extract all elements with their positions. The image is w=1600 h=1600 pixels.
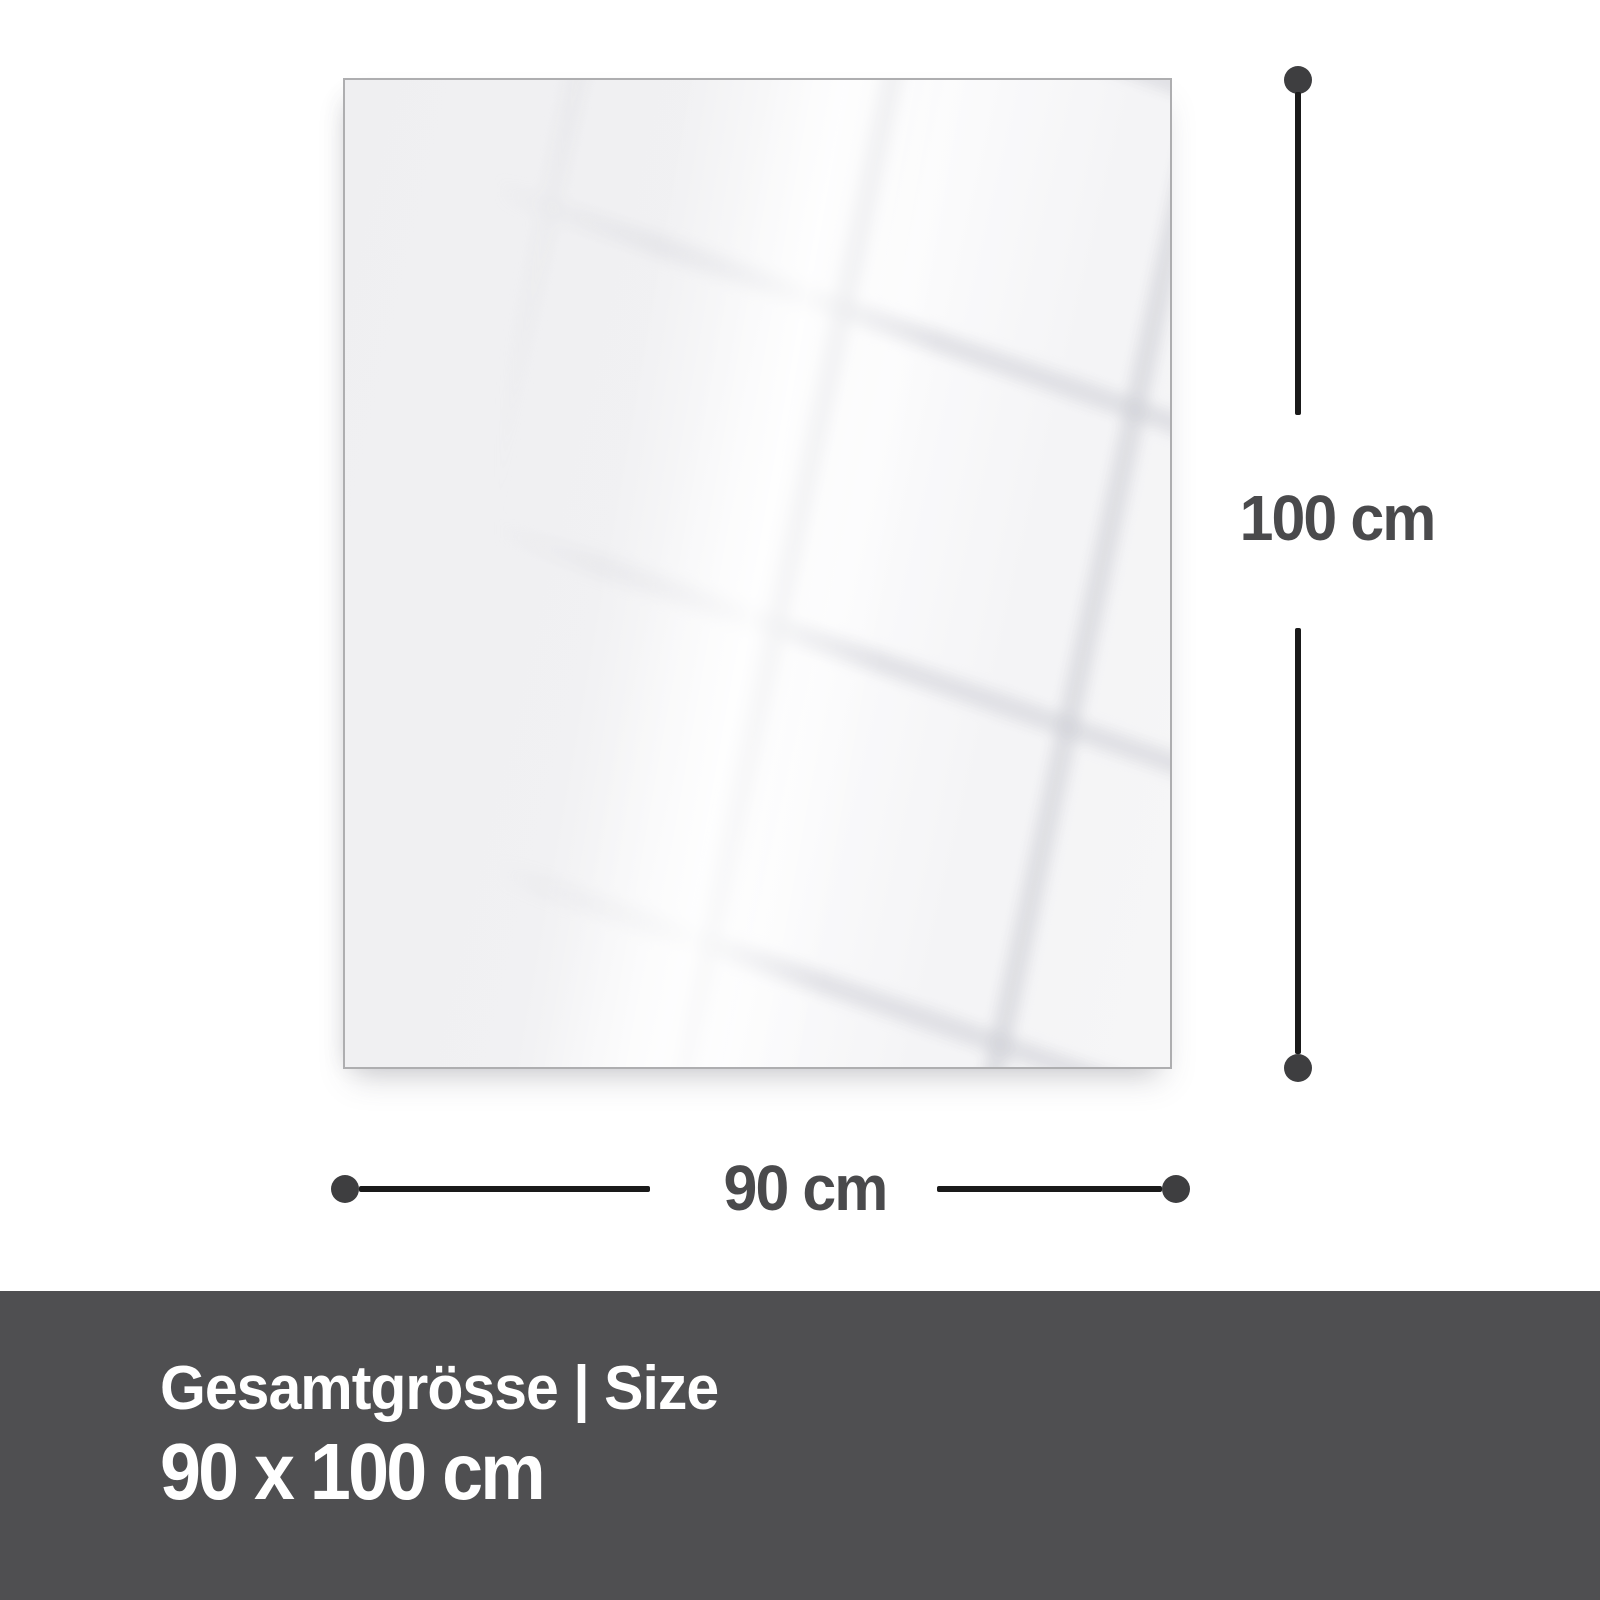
width-dimension-line-left — [359, 1186, 650, 1192]
width-dimension-left-dot — [331, 1175, 359, 1203]
width-dimension-right-dot — [1162, 1175, 1190, 1203]
width-dimension-label: 90 cm — [663, 1156, 948, 1220]
height-dimension-bottom-dot — [1284, 1054, 1312, 1082]
product-panel — [343, 78, 1172, 1069]
height-dimension-label: 100 cm — [1195, 486, 1480, 550]
height-dimension-top-dot — [1284, 66, 1312, 94]
width-dimension-line-right — [937, 1186, 1162, 1192]
footer-size-value: 90 x 100 cm — [160, 1432, 543, 1512]
footer-caption: Gesamtgrösse | Size — [160, 1358, 718, 1420]
glass-sheen — [345, 80, 1170, 1067]
height-dimension-line-lower — [1295, 628, 1301, 1054]
product-size-diagram: 100 cm 90 cm Gesamtgrösse | Size 90 x 10… — [0, 0, 1600, 1600]
height-dimension-line-upper — [1295, 92, 1301, 415]
